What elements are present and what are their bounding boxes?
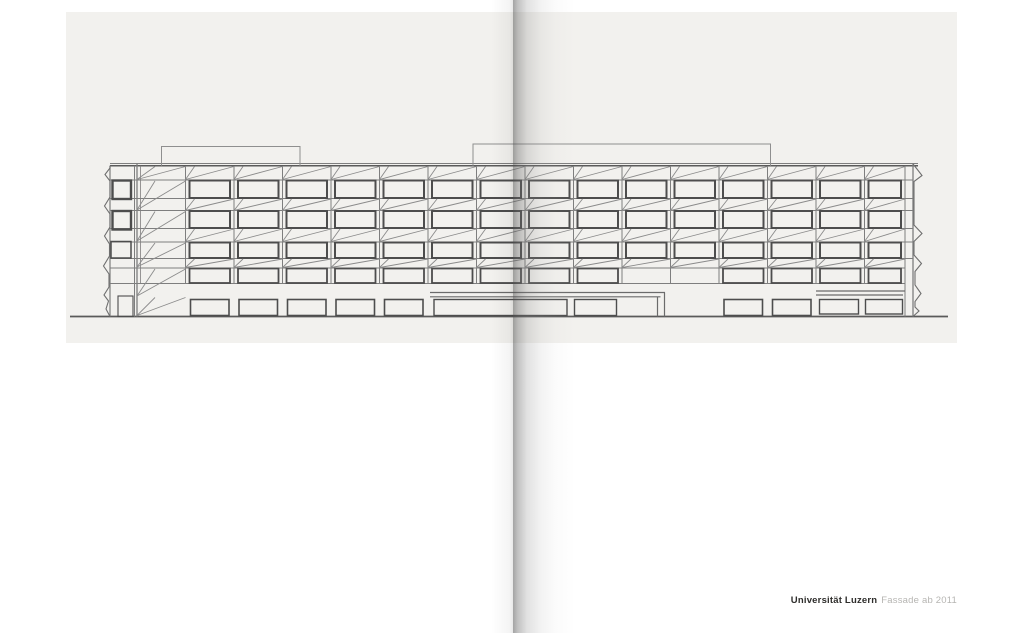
caption-title: Universität Luzern (791, 595, 877, 606)
caption-subtitle: Fassade ab 2011 (881, 595, 957, 606)
elevation-drawing (0, 0, 1024, 633)
caption: Universität LuzernFassade ab 2011 (791, 595, 957, 606)
book-spread-scan: { "page": {"width": 1024, "height": 633,… (0, 0, 1024, 633)
